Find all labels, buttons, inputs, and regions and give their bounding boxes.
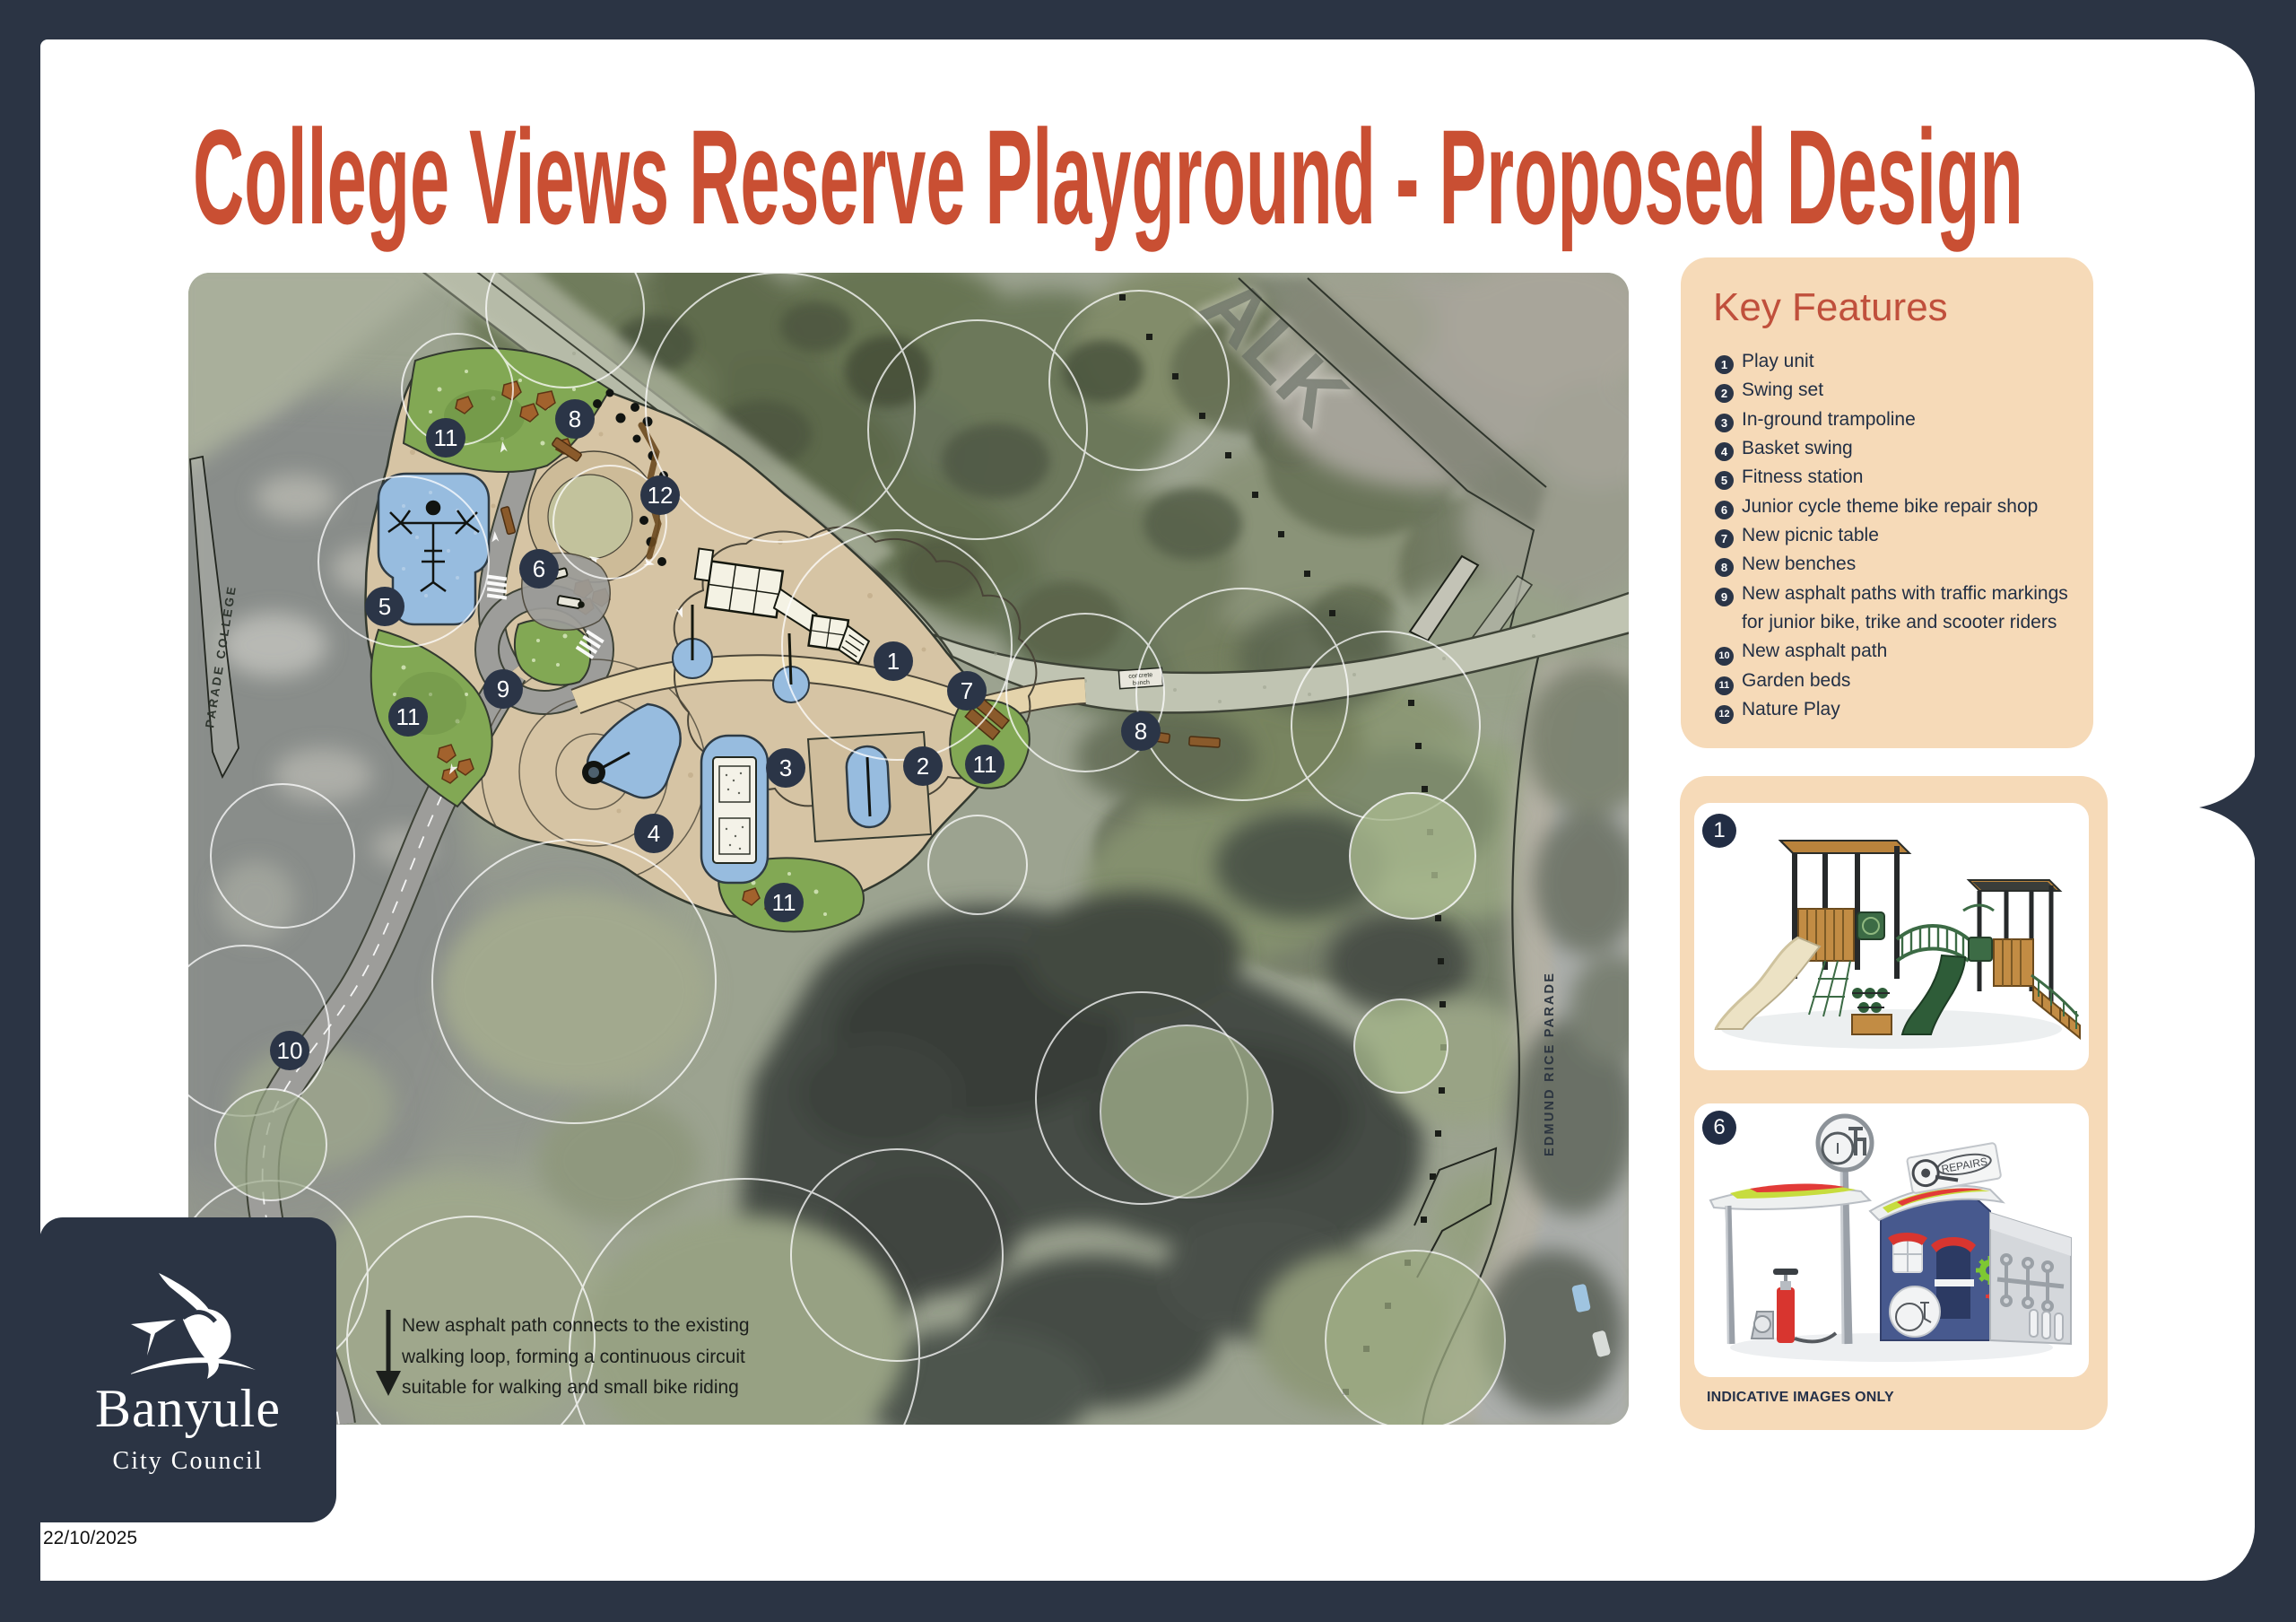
svg-text:7: 7: [961, 677, 973, 704]
svg-text:bench: bench: [1133, 679, 1151, 686]
svg-text:11: 11: [434, 424, 458, 451]
svg-text:4: 4: [648, 820, 660, 847]
svg-text:9: 9: [497, 676, 509, 702]
svg-text:3: 3: [779, 754, 792, 781]
svg-text:5: 5: [378, 593, 391, 620]
svg-text:1: 1: [887, 648, 900, 675]
svg-text:12: 12: [648, 482, 674, 509]
svg-text:suitable for walking and small: suitable for walking and small bike ridi…: [402, 1377, 739, 1398]
svg-text:walking loop, forming a contin: walking loop, forming a continuous circu…: [401, 1347, 745, 1367]
svg-text:6: 6: [533, 555, 545, 582]
svg-text:8: 8: [569, 405, 581, 432]
svg-text:10: 10: [277, 1037, 303, 1064]
svg-text:8: 8: [1135, 718, 1147, 745]
svg-text:11: 11: [396, 703, 421, 730]
svg-text:11: 11: [772, 889, 796, 916]
svg-text:2: 2: [917, 753, 929, 780]
svg-text:11: 11: [973, 751, 997, 778]
svg-text:New asphalt path connects to t: New asphalt path connects to the existin…: [402, 1315, 750, 1336]
svg-text:EDMUND RICE PARADE: EDMUND RICE PARADE: [1543, 972, 1557, 1156]
